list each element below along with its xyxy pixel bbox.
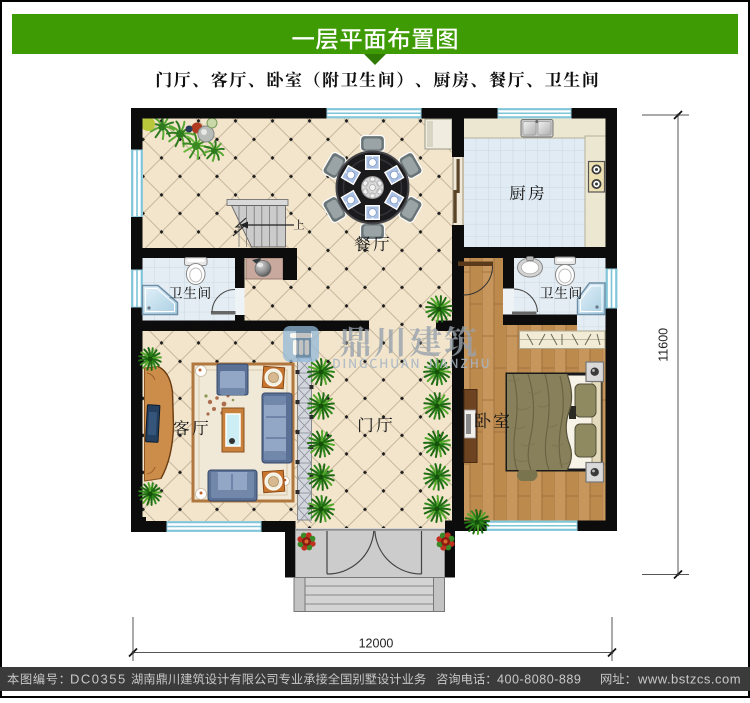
svg-text:400-8080-889: 400-8080-889 [497,673,581,687]
svg-text:DC0355: DC0355 [70,672,127,687]
svg-text:www.bstzcs.com: www.bstzcs.com [637,672,741,687]
svg-text:11600: 11600 [657,328,671,362]
svg-text:12000: 12000 [359,637,394,651]
